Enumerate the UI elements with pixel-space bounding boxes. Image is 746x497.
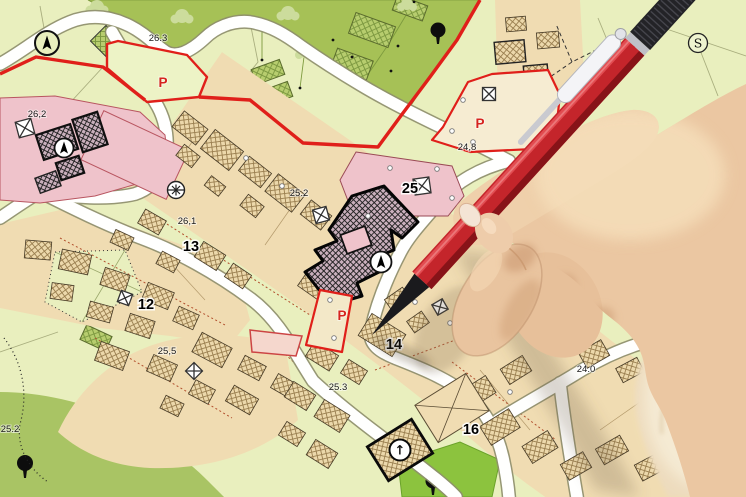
s-marker-icon: S — [689, 34, 708, 53]
parking-marker: P — [158, 75, 167, 90]
parcel-number: 16 — [463, 422, 479, 438]
building — [536, 31, 559, 49]
s-marker-label: S — [694, 36, 703, 51]
north-arrow-icon — [371, 252, 392, 273]
elevation-label: 26,1 — [178, 216, 197, 227]
elevation-label: 26,2 — [28, 109, 47, 120]
cadastral-map-photo: S ↑ 26.3 26,2 25.2 26,1 24,8 25,5 25.3 2… — [0, 0, 746, 497]
elevation-label: 24.0 — [577, 364, 596, 375]
parking-marker: P — [475, 116, 484, 131]
parcel-number: 25 — [402, 181, 418, 197]
north-arrow-icon — [55, 139, 74, 158]
church-marker-label: ↑ — [395, 444, 406, 459]
junction-symbol-icon — [168, 182, 185, 199]
church-marker-icon: ↑ — [390, 440, 411, 461]
parcel-number: 13 — [183, 239, 199, 255]
north-arrow-icon — [35, 31, 59, 55]
elevation-label: 25.2 — [1, 424, 20, 435]
building — [24, 240, 51, 260]
parcel-number: 12 — [138, 297, 154, 313]
parking-marker: P — [337, 308, 346, 323]
building — [505, 16, 526, 32]
building — [50, 283, 74, 302]
elevation-label: 26.3 — [149, 33, 168, 44]
elevation-label: 25.3 — [329, 382, 348, 393]
elevation-label: 25.2 — [290, 188, 309, 199]
elevation-label: 25,5 — [158, 346, 177, 357]
elevation-label: 24,8 — [458, 142, 477, 153]
building — [494, 40, 526, 65]
